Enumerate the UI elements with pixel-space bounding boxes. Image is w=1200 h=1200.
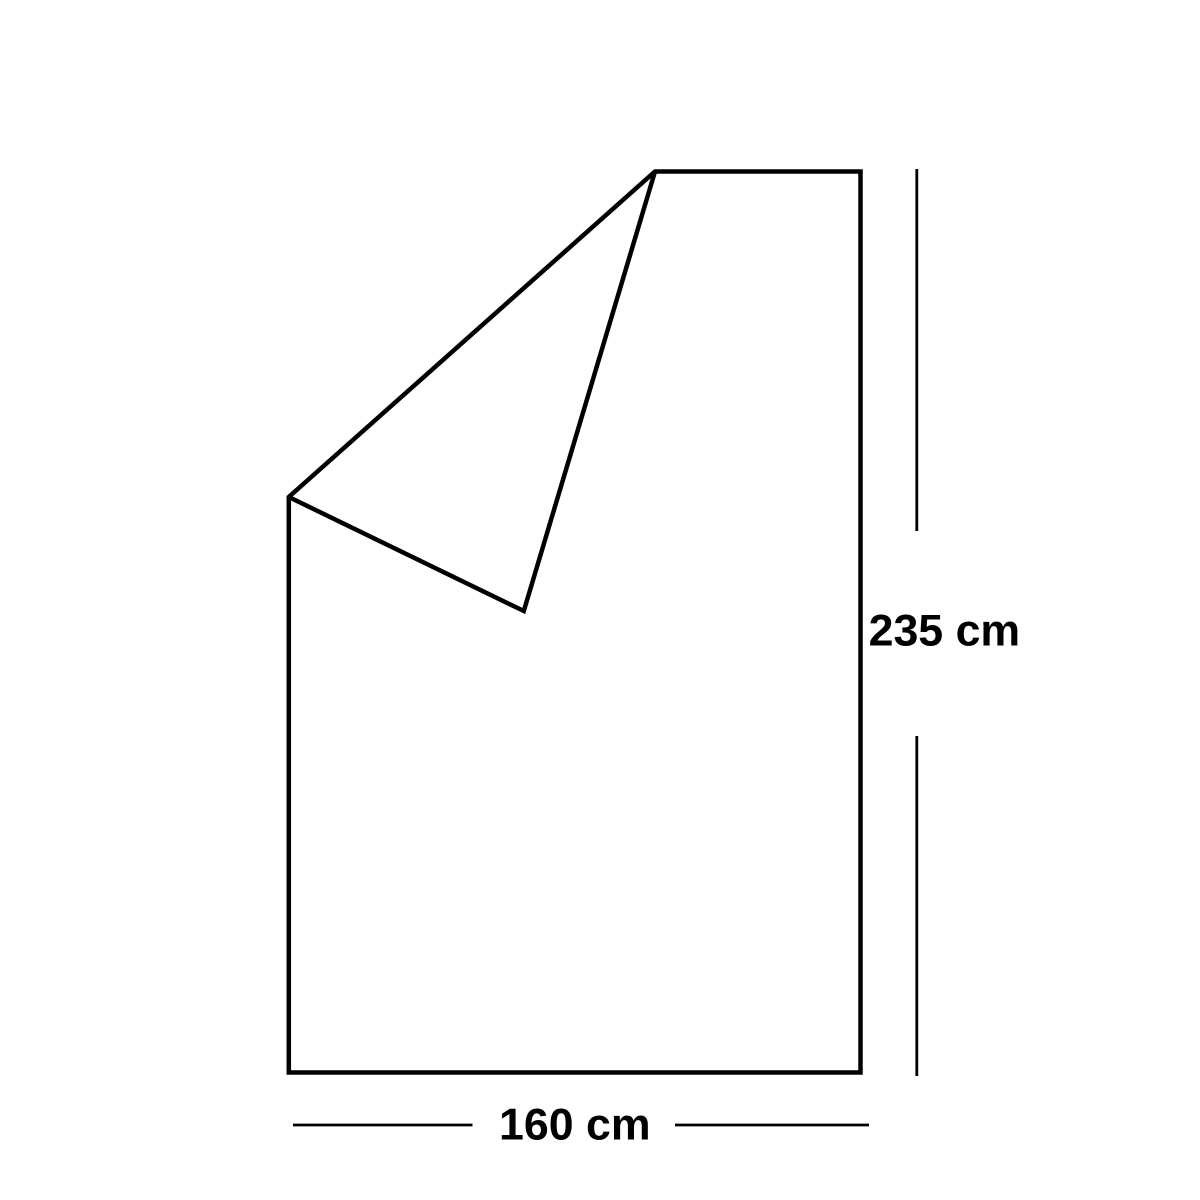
svg-text:160 cm: 160 cm	[499, 1100, 651, 1149]
svg-text:235 cm: 235 cm	[869, 606, 1021, 655]
